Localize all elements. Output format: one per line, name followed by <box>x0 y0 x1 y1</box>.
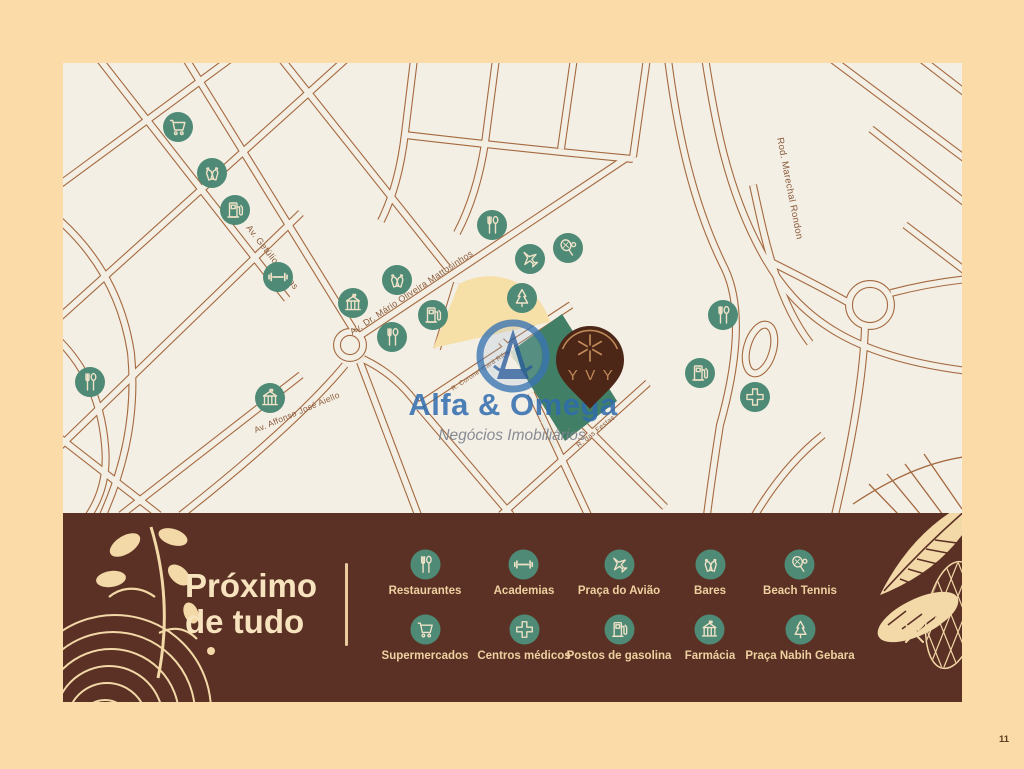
section-heading: Próximo de tudo <box>185 568 317 639</box>
pin-label: YVY <box>568 367 621 384</box>
poi-building-icon <box>255 383 285 413</box>
restaurant-icon <box>410 549 441 580</box>
legend-item-tree: Praça Nabih Gebara <box>745 614 854 679</box>
legend-item-label: Supermercados <box>382 650 469 662</box>
gym-icon <box>508 549 539 580</box>
gas-icon <box>604 614 635 645</box>
neighborhood-map: Av. Getúlio VargasAv. Dr. Mário Oliveira… <box>63 63 962 513</box>
poi-bar-icon <box>382 265 412 295</box>
poi-bar-icon <box>197 158 227 188</box>
legend-item-label: Academias <box>494 585 555 597</box>
cart-icon <box>410 614 441 645</box>
cross-icon <box>509 614 540 645</box>
poi-restaurant-icon <box>708 300 738 330</box>
legend-item-label: Praça do Avião <box>578 585 660 597</box>
poi-restaurant-icon <box>377 322 407 352</box>
plane-icon <box>604 549 635 580</box>
poi-tennis-icon <box>553 233 583 263</box>
heading-line-2: de tudo <box>185 604 317 640</box>
poi-tree-icon <box>507 283 537 313</box>
legend-item-building: Farmácia <box>685 614 736 679</box>
map-canvas: Av. Getúlio VargasAv. Dr. Mário Oliveira… <box>63 63 962 513</box>
legend-item-plane: Praça do Avião <box>578 549 660 614</box>
page-number: 11 <box>999 734 1009 745</box>
legend-item-bar: Bares <box>694 549 726 614</box>
poi-restaurant-icon <box>75 367 105 397</box>
poi-plane-icon <box>515 244 545 274</box>
legend: RestaurantesAcademiasPraça do AviãoBares… <box>375 549 845 679</box>
legend-item-label: Praça Nabih Gebara <box>745 650 854 662</box>
tennis-icon <box>784 549 815 580</box>
legend-item-label: Farmácia <box>685 650 736 662</box>
poi-gas-icon <box>220 195 250 225</box>
legend-item-cross: Centros médicos <box>477 614 570 679</box>
tree-icon <box>785 614 816 645</box>
legend-item-label: Postos de gasolina <box>567 650 672 662</box>
watermark-logo <box>480 323 546 389</box>
legend-item-label: Centros médicos <box>477 650 570 662</box>
poi-restaurant-icon <box>477 210 507 240</box>
poi-building-icon <box>338 288 368 318</box>
building-icon <box>694 614 725 645</box>
poi-gym-icon <box>263 262 293 292</box>
legend-band: Próximo de tudo RestaurantesAcademiasPra… <box>63 513 962 702</box>
poi-gas-icon <box>685 358 715 388</box>
legend-item-gas: Postos de gasolina <box>567 614 672 679</box>
poi-cross-icon <box>740 382 770 412</box>
heading-line-1: Próximo <box>185 568 317 604</box>
poi-cart-icon <box>163 112 193 142</box>
brochure-page: Av. Getúlio VargasAv. Dr. Mário Oliveira… <box>0 0 1024 769</box>
legend-item-restaurant: Restaurantes <box>389 549 462 614</box>
legend-item-tennis: Beach Tennis <box>763 549 837 614</box>
watermark-subtitle: Negócios Imobiliários <box>438 427 586 444</box>
legend-item-label: Bares <box>694 585 726 597</box>
bar-icon <box>695 549 726 580</box>
legend-item-gym: Academias <box>494 549 555 614</box>
legend-item-label: Restaurantes <box>389 585 462 597</box>
legend-item-cart: Supermercados <box>382 614 469 679</box>
legend-item-label: Beach Tennis <box>763 585 837 597</box>
heading-divider <box>345 563 348 646</box>
poi-gas-icon <box>418 300 448 330</box>
